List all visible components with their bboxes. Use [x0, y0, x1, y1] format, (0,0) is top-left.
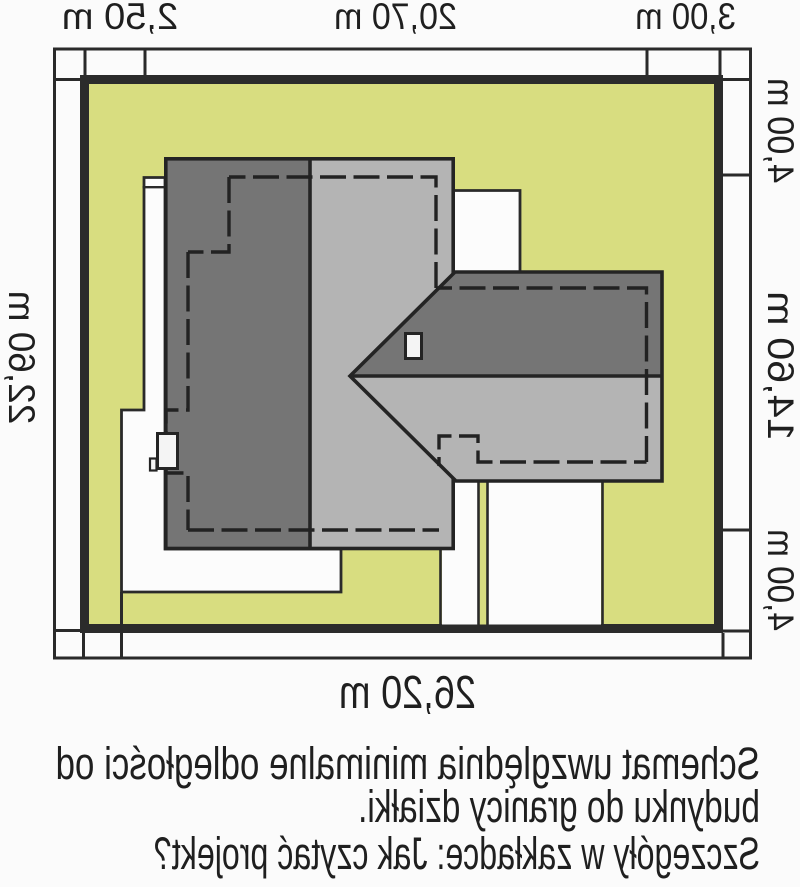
svg-text:20,70 m: 20,70 m [334, 0, 457, 37]
svg-text:14,60 m: 14,60 m [760, 291, 800, 441]
svg-text:Szczegóły w zakładce: Jak czyt: Szczegóły w zakładce: Jak czytać projekt… [154, 830, 760, 879]
svg-text:budynku do granicy działki.: budynku do granicy działki. [358, 782, 760, 832]
svg-text:22,60 m: 22,60 m [1, 291, 42, 425]
svg-text:4,00 m: 4,00 m [760, 529, 800, 631]
svg-text:2,50 m: 2,50 m [62, 0, 178, 37]
svg-text:3,00 m: 3,00 m [635, 0, 736, 37]
svg-text:26,20 m: 26,20 m [339, 667, 476, 718]
svg-text:4,00 m: 4,00 m [760, 78, 800, 183]
